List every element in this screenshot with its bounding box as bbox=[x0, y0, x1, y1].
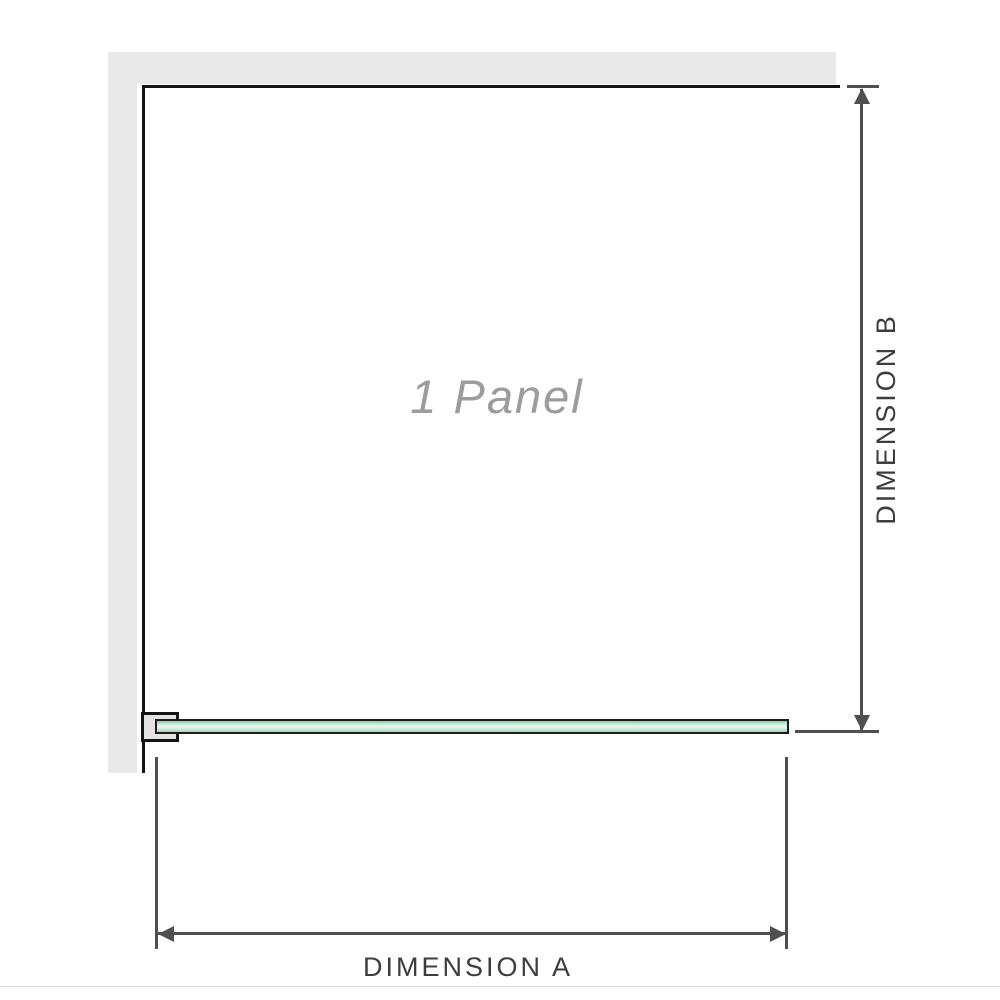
panel-front-outline bbox=[142, 85, 840, 773]
dimension-b-line bbox=[860, 89, 863, 731]
arrow-left-icon bbox=[158, 926, 174, 942]
arrow-down-icon bbox=[854, 715, 870, 731]
dimension-a-label: DIMENSION A bbox=[308, 950, 628, 984]
panel-count-label: 1 Panel bbox=[347, 366, 647, 428]
dimension-a-line bbox=[158, 932, 786, 935]
dimension-a-right-extension bbox=[785, 757, 788, 949]
image-bottom-edge bbox=[0, 986, 1000, 987]
wall-top bbox=[108, 52, 836, 84]
dimension-a-left-extension bbox=[155, 757, 158, 949]
dimension-b-label: DIMENSION B bbox=[871, 309, 901, 529]
arrow-up-icon bbox=[854, 88, 870, 104]
arrow-right-icon bbox=[770, 926, 786, 942]
glass-panel-plan-view bbox=[155, 719, 789, 734]
wall-left bbox=[108, 52, 137, 773]
